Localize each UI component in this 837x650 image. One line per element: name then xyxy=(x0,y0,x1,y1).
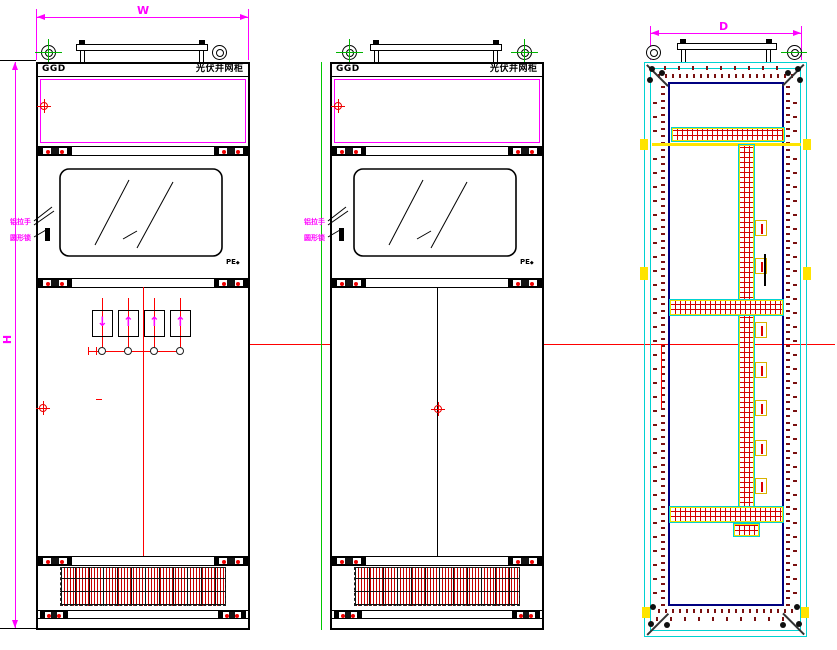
corner-bolt xyxy=(780,622,786,628)
hole-column-right xyxy=(786,84,790,606)
corner-bolt xyxy=(785,70,791,76)
bar-post xyxy=(199,51,204,62)
corner-bolt xyxy=(650,604,656,610)
hinge-detail xyxy=(508,279,542,287)
w-arrow-left xyxy=(37,14,45,20)
corner-bolt xyxy=(649,66,655,72)
lifting-eye-icon xyxy=(212,45,227,60)
busbar-foot xyxy=(733,523,760,537)
component-mark xyxy=(764,254,766,286)
busbar-middle xyxy=(669,299,784,316)
busbar-bracket xyxy=(755,362,767,378)
pe-symbol-icon: ◆ xyxy=(530,260,534,266)
handle-callout-label: 铝拉手 xyxy=(10,218,31,226)
lock-callout-label: 圆形锁 xyxy=(304,234,325,242)
corner-bolt xyxy=(648,621,654,627)
corner-bolt xyxy=(795,66,801,72)
pe-terminal-label: PE◆ xyxy=(520,258,534,267)
busbar-bracket xyxy=(755,478,767,494)
top-panel-border xyxy=(334,79,540,143)
bar-post xyxy=(493,51,498,62)
bar-post xyxy=(766,50,771,62)
meter-instrument: ↓ xyxy=(92,310,113,337)
panel-separator xyxy=(36,155,250,156)
bar-cap xyxy=(493,40,499,44)
corner-bolt xyxy=(794,604,800,610)
corner-bolt xyxy=(796,621,802,627)
corner-bolt xyxy=(664,622,670,628)
hole-row-top-sparse xyxy=(664,66,784,70)
side-tab xyxy=(803,267,811,280)
h-arrow-down xyxy=(12,620,18,628)
position-marker xyxy=(39,404,47,412)
busbar-bracket xyxy=(755,322,767,338)
top-panel-border xyxy=(40,79,246,143)
lock-callout-label: 圆形锁 xyxy=(10,234,31,242)
hinge-detail xyxy=(214,279,248,287)
cabinet-code-label: GGD xyxy=(42,64,66,75)
d-arrow-left xyxy=(651,30,659,36)
side-tab xyxy=(640,139,648,150)
inspection-window xyxy=(353,168,517,257)
panel-separator xyxy=(36,565,250,566)
meter-instrument: ↑ xyxy=(118,310,139,337)
hinge-detail xyxy=(508,557,542,565)
panel-separator xyxy=(36,618,250,619)
panel-separator xyxy=(36,76,250,77)
hinge-detail xyxy=(38,147,72,155)
rear-panel-frame xyxy=(668,82,784,606)
busbar-bracket xyxy=(755,400,767,416)
h-extension-top xyxy=(0,60,36,61)
bar-post xyxy=(681,50,686,62)
pe-terminal-label: PE◆ xyxy=(226,258,240,267)
side-tab xyxy=(801,607,809,618)
panel-separator xyxy=(330,155,544,156)
hole-row-bottom-sparse xyxy=(656,617,796,621)
d-dimension-label: D xyxy=(719,21,728,32)
hinge-detail xyxy=(214,557,248,565)
push-button xyxy=(150,347,158,355)
d-dimension-line xyxy=(650,33,802,34)
corner-bolt xyxy=(659,70,665,76)
door-lock xyxy=(339,228,344,241)
corner-bolt xyxy=(647,77,653,83)
w-dimension-label: W xyxy=(137,5,149,16)
hinge-detail xyxy=(332,557,366,565)
yellow-rail xyxy=(652,143,801,146)
busbar-lower xyxy=(669,506,784,523)
push-button xyxy=(124,347,132,355)
w-extension-right xyxy=(248,9,249,60)
handle-callout-label: 铝拉手 xyxy=(304,218,325,226)
cabinet-code-label: GGD xyxy=(336,64,360,75)
panel-separator xyxy=(330,565,544,566)
bar-cap xyxy=(766,39,772,43)
cabinet-name-label: 光伏并网柜 xyxy=(490,64,538,75)
cad-canvas: H W GGD 光伏并网柜 PE◆ 铝拉手 圆形锁 xyxy=(0,0,837,650)
h-arrow-up xyxy=(12,62,18,70)
hinge-detail xyxy=(38,557,72,565)
hinge-detail xyxy=(508,147,542,155)
panel-separator xyxy=(330,618,544,619)
hole-row-top xyxy=(658,74,794,78)
w-arrow-right xyxy=(240,14,248,20)
hinge-detail xyxy=(332,279,366,287)
busbar-bracket xyxy=(755,440,767,456)
ventilation-louver xyxy=(354,567,520,606)
pe-text: PE xyxy=(226,258,236,266)
cabinet-name-label: 光伏并网柜 xyxy=(196,64,244,75)
h-dimension-line xyxy=(15,62,16,628)
side-tab xyxy=(803,139,811,150)
pe-symbol-icon: ◆ xyxy=(236,260,240,266)
w-dimension-line xyxy=(36,17,249,18)
bar-post xyxy=(374,51,379,62)
corner-bolt xyxy=(797,77,803,83)
bar-cap xyxy=(373,40,379,44)
bar-cap xyxy=(199,40,205,44)
tick-mark xyxy=(96,347,97,355)
position-marker xyxy=(434,405,442,413)
bar-post xyxy=(80,51,85,62)
tick-mark xyxy=(88,347,89,355)
busbar-bracket xyxy=(755,220,767,236)
side-tab xyxy=(642,607,650,618)
panel-separator xyxy=(330,76,544,77)
door-split-line xyxy=(437,287,438,556)
busbar-vertical xyxy=(738,144,755,524)
inspection-window xyxy=(59,168,223,257)
push-button xyxy=(176,347,184,355)
side-tab xyxy=(640,267,648,280)
hole-column-left-sparse xyxy=(653,96,657,594)
pe-text: PE xyxy=(520,258,530,266)
hole-row-bottom xyxy=(658,609,794,613)
position-marker xyxy=(40,102,48,110)
ventilation-louver xyxy=(60,567,226,606)
h-extension-bottom xyxy=(0,628,36,629)
meter-instrument: ↑ xyxy=(144,310,165,337)
bar-cap xyxy=(79,40,85,44)
lifting-bar xyxy=(76,44,208,51)
meter-instrument: ↑ xyxy=(170,310,191,337)
small-tick xyxy=(96,399,102,400)
red-edge-segment xyxy=(661,344,662,408)
eye-crosshair-h xyxy=(781,52,807,53)
lifting-eye-icon xyxy=(646,45,661,60)
door-lock xyxy=(45,228,50,241)
hinge-detail xyxy=(332,147,366,155)
hinge-detail xyxy=(38,279,72,287)
hole-column-right-sparse xyxy=(793,96,797,594)
lifting-bar xyxy=(370,44,502,51)
bar-cap xyxy=(680,39,686,43)
lifting-bar xyxy=(677,43,777,50)
d-arrow-right xyxy=(793,30,801,36)
hinge-detail xyxy=(214,147,248,155)
section-line xyxy=(321,62,322,630)
busbar-top xyxy=(671,127,785,142)
position-marker xyxy=(334,102,342,110)
push-button xyxy=(98,347,106,355)
h-dimension-label: H xyxy=(2,335,13,344)
